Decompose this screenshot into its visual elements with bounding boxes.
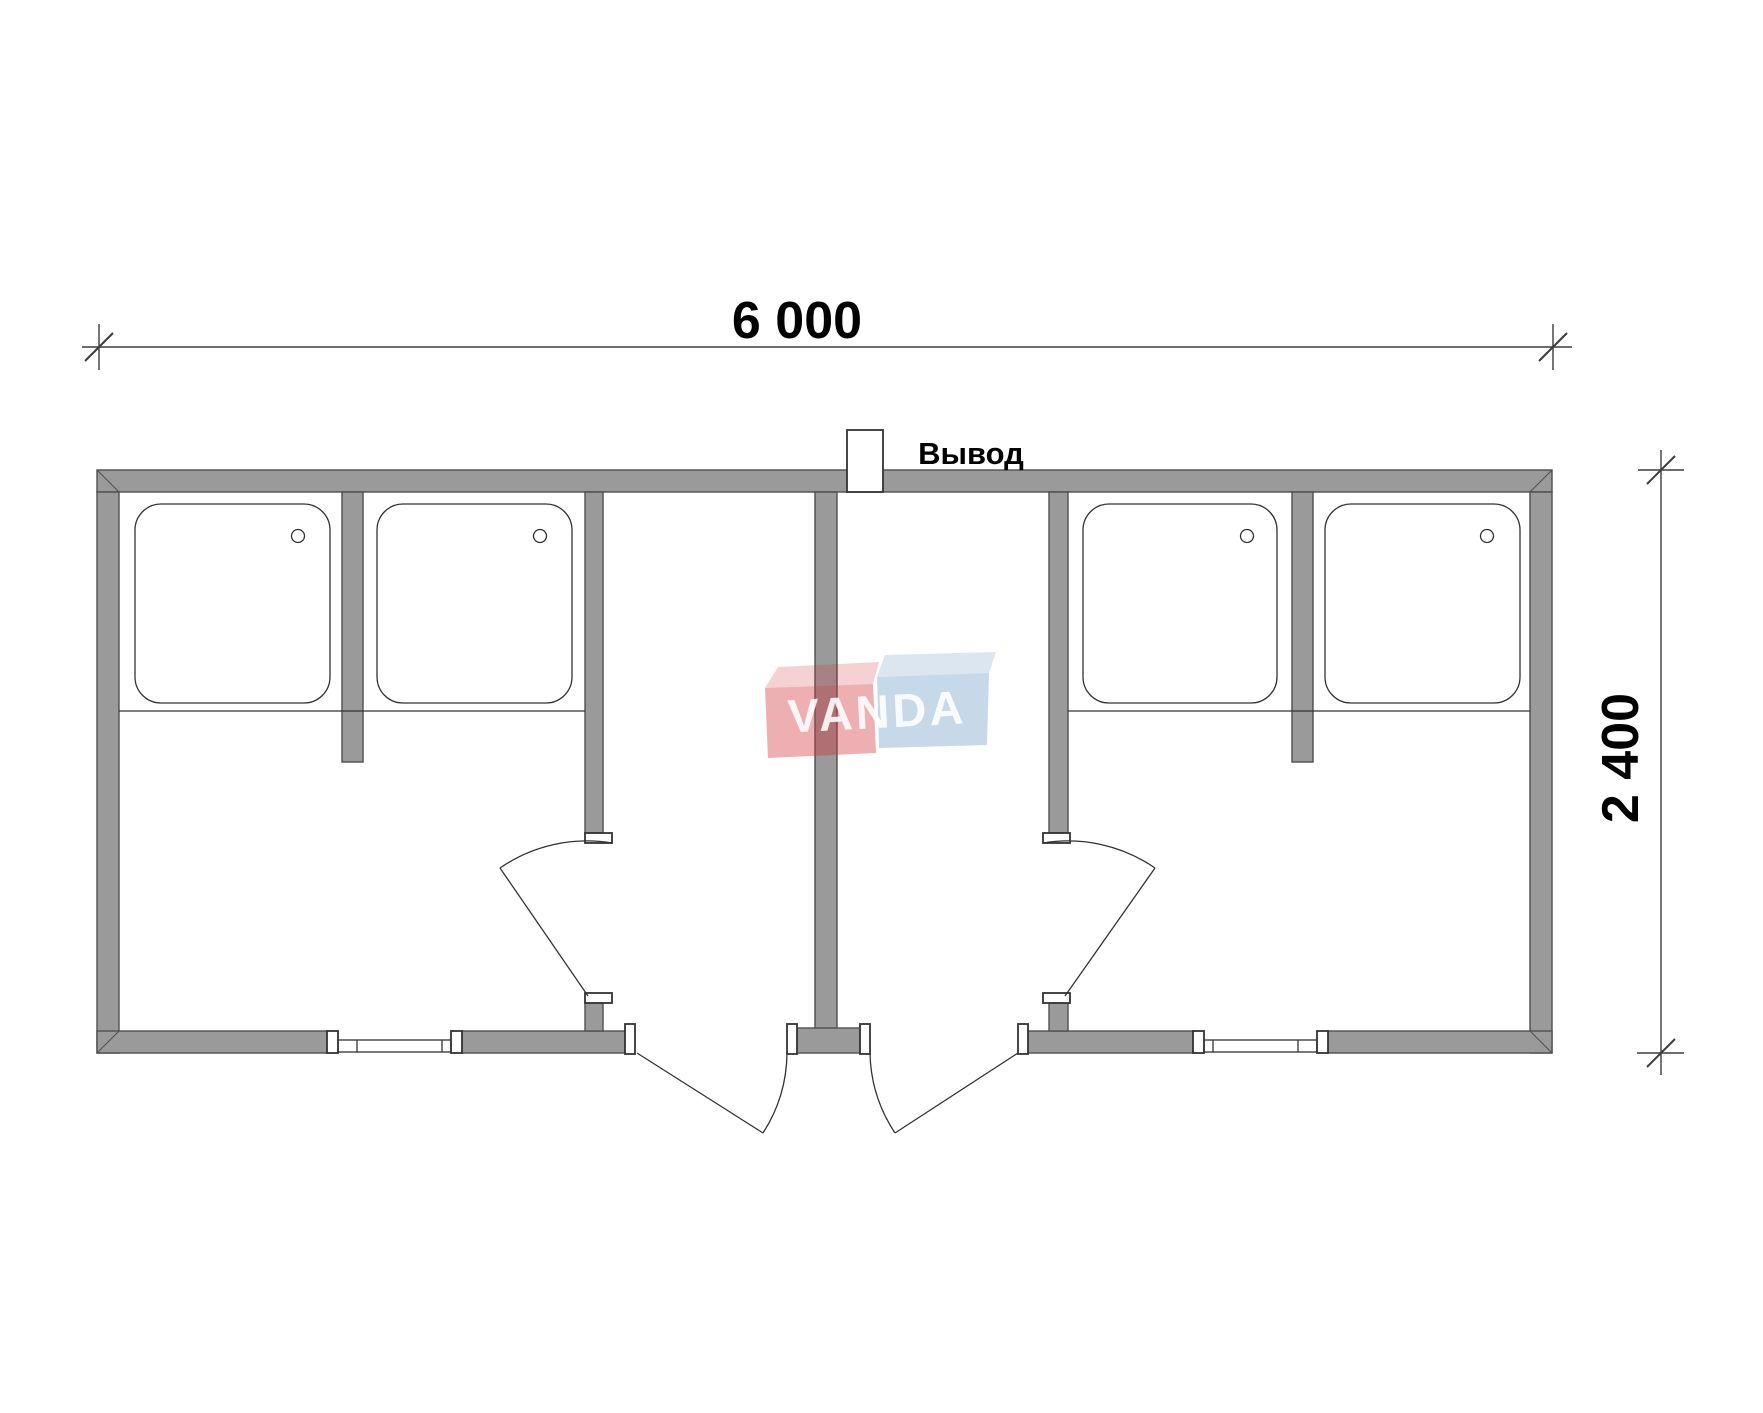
partition-left-upper (585, 492, 603, 833)
logo-red-box-flap (765, 662, 879, 688)
window-left (327, 1031, 462, 1053)
tray-stub-right (1292, 492, 1313, 762)
door-frame-left-int-bottom (585, 993, 612, 1003)
floor-plan-canvas: 6 000 2 400 (0, 0, 1763, 1413)
door-jamb-ext-right-1 (860, 1024, 870, 1054)
outlet-rect (847, 430, 883, 492)
door-arc-right-ext (870, 1053, 895, 1133)
logo-text: VANDA (786, 680, 967, 742)
wall-bottom-seg-4 (1328, 1031, 1552, 1053)
shower-tray-1 (135, 504, 330, 703)
wall-bottom-seg-2 (462, 1031, 625, 1053)
wall-center (815, 492, 837, 1031)
wall-left (97, 492, 119, 1053)
wall-top (97, 470, 1552, 492)
door-arc-right-int (1043, 841, 1155, 868)
dim-height-label: 2 400 (1592, 693, 1650, 823)
window-left-glazing (338, 1040, 451, 1052)
dimension-width: 6 000 (82, 292, 1572, 370)
door-leaf-right-ext (895, 1053, 1018, 1133)
window-left-block-1 (327, 1031, 338, 1053)
vanda-logo: VANDA (765, 652, 996, 758)
dim-width-label: 6 000 (732, 292, 862, 350)
door-arc-left-int (500, 841, 612, 868)
door-arc-left-ext (763, 1053, 787, 1133)
shower-tray-4 (1325, 504, 1520, 703)
partition-right-lower (1049, 1003, 1068, 1031)
walls (97, 470, 1552, 1053)
door-leaf-left-ext (637, 1053, 763, 1133)
wall-bottom-seg-3 (1028, 1031, 1193, 1053)
window-right-glazing (1204, 1040, 1317, 1052)
wall-right (1530, 492, 1552, 1053)
tray-drain-4 (1481, 530, 1494, 543)
partition-left-lower (585, 1003, 603, 1031)
shower-tray-2 (377, 504, 572, 703)
window-right (1193, 1031, 1328, 1053)
outlet-label: Вывод (918, 436, 1024, 471)
door-jamb-ext-left-2 (787, 1024, 797, 1054)
tray-drain-3 (1241, 530, 1254, 543)
door-leaf-left-int (500, 868, 588, 996)
door-jamb-ext-right-2 (1018, 1024, 1028, 1054)
door-leaf-right-int (1065, 868, 1155, 996)
tray-stub-left (342, 492, 363, 762)
door-jamb-ext-left-1 (625, 1024, 635, 1054)
wall-center-foot (797, 1028, 860, 1053)
floor-plan-svg: 6 000 2 400 (0, 0, 1763, 1413)
partition-right-upper (1049, 492, 1068, 833)
tray-drain-1 (292, 530, 305, 543)
wall-bottom-seg-1 (97, 1031, 327, 1053)
window-left-block-2 (451, 1031, 462, 1053)
window-right-block-1 (1193, 1031, 1204, 1053)
window-right-block-2 (1317, 1031, 1328, 1053)
logo-blue-box-flap (877, 652, 996, 677)
shower-tray-3 (1083, 504, 1277, 703)
dimension-height: 2 400 (1592, 450, 1684, 1075)
tray-drain-2 (534, 530, 547, 543)
